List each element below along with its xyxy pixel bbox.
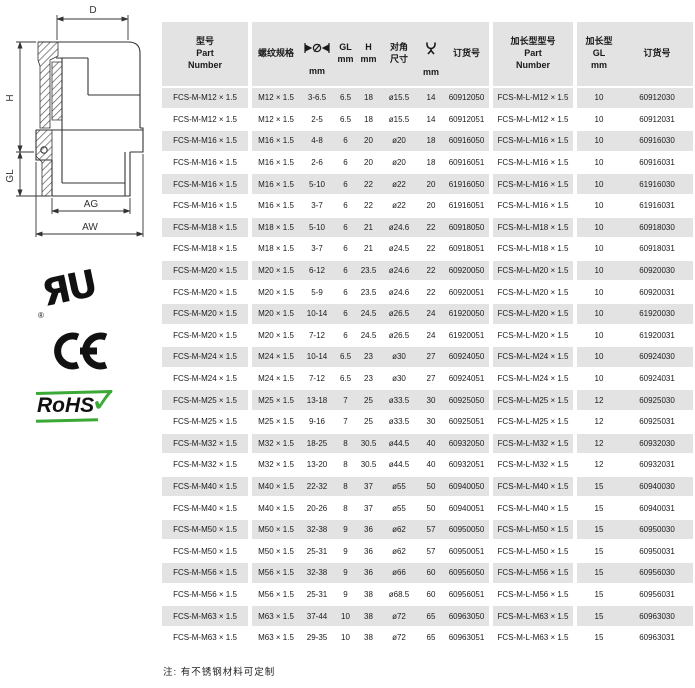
table-cell: 6 (334, 217, 357, 239)
table-row: FCS-M-M50 × 1.5M50 × 1.525-31936ø6257609… (162, 540, 693, 562)
table-cell: 4-8 (300, 130, 334, 152)
table-cell: FCS-M-L-M20 × 1.5 (491, 281, 575, 303)
table-cell: 13-18 (300, 389, 334, 411)
col-header-order-no: 订货号 (444, 22, 491, 87)
col-header-clamp-range: mm (300, 22, 334, 87)
table-cell: 14 (418, 87, 444, 109)
table-cell: 10 (575, 217, 621, 239)
table-row: FCS-M-M24 × 1.5M24 × 1.57-126.523ø302760… (162, 368, 693, 390)
table-cell: 61916030 (621, 173, 693, 195)
table-cell: 20 (418, 195, 444, 217)
table-cell: 14 (418, 109, 444, 131)
table-cell: 10 (334, 627, 357, 649)
table-cell: 60963030 (621, 605, 693, 627)
table-cell: FCS-M-L-M12 × 1.5 (491, 87, 575, 109)
table-cell: 60963051 (444, 627, 491, 649)
table-cell: 27 (418, 368, 444, 390)
table-cell: M18 × 1.5 (250, 217, 300, 239)
table-cell: 60918031 (621, 238, 693, 260)
table-cell: FCS-M-L-M25 × 1.5 (491, 411, 575, 433)
dim-label-gl: GL (5, 169, 16, 183)
table-cell: FCS-M-M20 × 1.5 (162, 281, 250, 303)
ce-logo-svg (50, 328, 112, 374)
table-cell: M56 × 1.5 (250, 584, 300, 606)
table-row: FCS-M-M32 × 1.5M32 × 1.513-20830.5ø44.54… (162, 454, 693, 476)
table-row: FCS-M-M25 × 1.5M25 × 1.59-16725ø33.53060… (162, 411, 693, 433)
table-cell: 15 (575, 476, 621, 498)
table-cell: 60920050 (444, 260, 491, 282)
table-cell: ø30 (380, 368, 418, 390)
table-cell: M20 × 1.5 (250, 303, 300, 325)
spec-table-section: 型号 Part Number 螺纹规格 mm (162, 22, 695, 649)
table-cell: 12 (575, 411, 621, 433)
table-cell: FCS-M-L-M24 × 1.5 (491, 368, 575, 390)
table-cell: FCS-M-L-M50 × 1.5 (491, 519, 575, 541)
table-cell: 36 (357, 519, 380, 541)
table-cell: 8 (334, 476, 357, 498)
table-row: FCS-M-M56 × 1.5M56 × 1.525-31938ø68.5606… (162, 584, 693, 606)
table-row: FCS-M-M32 × 1.5M32 × 1.518-25830.5ø44.54… (162, 433, 693, 455)
table-cell: M16 × 1.5 (250, 173, 300, 195)
table-cell: 22 (357, 173, 380, 195)
table-cell: 9 (334, 540, 357, 562)
table-cell: 60920051 (444, 281, 491, 303)
table-cell: 10 (575, 87, 621, 109)
table-cell: 5-9 (300, 281, 334, 303)
table-cell: 24.5 (357, 325, 380, 347)
table-cell: FCS-M-L-M16 × 1.5 (491, 173, 575, 195)
table-cell: 22 (418, 260, 444, 282)
table-cell: FCS-M-M12 × 1.5 (162, 87, 250, 109)
table-cell: 60912031 (621, 109, 693, 131)
table-row: FCS-M-M16 × 1.5M16 × 1.55-10622ø22206191… (162, 173, 693, 195)
table-cell: M50 × 1.5 (250, 519, 300, 541)
spec-table: 型号 Part Number 螺纹规格 mm (162, 22, 693, 649)
table-cell: M40 × 1.5 (250, 476, 300, 498)
table-cell: 27 (418, 346, 444, 368)
table-cell: FCS-M-M25 × 1.5 (162, 411, 250, 433)
table-cell: FCS-M-L-M32 × 1.5 (491, 454, 575, 476)
table-cell: 22 (418, 238, 444, 260)
table-cell: FCS-M-L-M20 × 1.5 (491, 303, 575, 325)
table-cell: M24 × 1.5 (250, 346, 300, 368)
table-cell: FCS-M-L-M20 × 1.5 (491, 260, 575, 282)
table-cell: FCS-M-M20 × 1.5 (162, 325, 250, 347)
table-row: FCS-M-M24 × 1.5M24 × 1.510-146.523ø30276… (162, 346, 693, 368)
table-cell: 29-35 (300, 627, 334, 649)
table-cell: FCS-M-M16 × 1.5 (162, 130, 250, 152)
table-cell: 12 (575, 454, 621, 476)
table-cell: 10-14 (300, 303, 334, 325)
table-cell: 10 (575, 281, 621, 303)
spec-table-body: FCS-M-M12 × 1.5M12 × 1.53-6.56.518ø15.51… (162, 87, 693, 648)
col-header-thread-spec: 螺纹规格 (250, 22, 300, 87)
table-cell: 38 (357, 584, 380, 606)
table-cell: 32-38 (300, 519, 334, 541)
table-cell: 60920030 (621, 260, 693, 282)
table-cell: M20 × 1.5 (250, 260, 300, 282)
table-row: FCS-M-M12 × 1.5M12 × 1.52-56.518ø15.5146… (162, 109, 693, 131)
table-cell: FCS-M-M18 × 1.5 (162, 217, 250, 239)
table-cell: FCS-M-M40 × 1.5 (162, 497, 250, 519)
table-cell: 60932031 (621, 454, 693, 476)
table-cell: FCS-M-L-M63 × 1.5 (491, 605, 575, 627)
table-cell: ø26.5 (380, 325, 418, 347)
table-cell: M20 × 1.5 (250, 325, 300, 347)
table-cell: 15 (575, 540, 621, 562)
wrench-unit-label: mm (423, 67, 439, 77)
table-cell: 6 (334, 152, 357, 174)
table-cell: ø20 (380, 152, 418, 174)
table-cell: 50 (418, 497, 444, 519)
table-cell: 60950031 (621, 540, 693, 562)
table-cell: 30 (418, 389, 444, 411)
table-cell: 10 (575, 109, 621, 131)
table-cell: FCS-M-L-M40 × 1.5 (491, 497, 575, 519)
table-cell: FCS-M-M16 × 1.5 (162, 173, 250, 195)
table-cell: FCS-M-M32 × 1.5 (162, 433, 250, 455)
table-cell: ø55 (380, 497, 418, 519)
table-cell: 65 (418, 605, 444, 627)
table-cell: ø44.5 (380, 454, 418, 476)
table-cell: 60924051 (444, 368, 491, 390)
table-cell: FCS-M-M16 × 1.5 (162, 195, 250, 217)
table-cell: 38 (357, 605, 380, 627)
table-cell: 60963050 (444, 605, 491, 627)
table-cell: 36 (357, 540, 380, 562)
table-cell: 15 (575, 605, 621, 627)
table-cell: ø33.5 (380, 411, 418, 433)
table-cell: 65 (418, 627, 444, 649)
table-cell: FCS-M-L-M32 × 1.5 (491, 433, 575, 455)
table-cell: FCS-M-L-M20 × 1.5 (491, 325, 575, 347)
rohs-check-icon: ✓ (90, 384, 119, 418)
table-cell: 18-25 (300, 433, 334, 455)
table-cell: 60925051 (444, 411, 491, 433)
clamp-unit-label: mm (309, 66, 325, 76)
table-cell: 60 (418, 584, 444, 606)
table-cell: 60925050 (444, 389, 491, 411)
table-cell: 60932030 (621, 433, 693, 455)
table-row: FCS-M-M40 × 1.5M40 × 1.520-26837ø5550609… (162, 497, 693, 519)
table-cell: FCS-M-M12 × 1.5 (162, 109, 250, 131)
footnote: 注: 有不锈钢材料可定制 (163, 664, 275, 678)
table-cell: 60918050 (444, 217, 491, 239)
table-cell: FCS-M-M20 × 1.5 (162, 303, 250, 325)
clamp-range-icon (304, 42, 330, 54)
table-cell: FCS-M-M63 × 1.5 (162, 605, 250, 627)
table-cell: FCS-M-M24 × 1.5 (162, 346, 250, 368)
table-row: FCS-M-M20 × 1.5M20 × 1.510-14624.5ø26.52… (162, 303, 693, 325)
table-cell: 12 (575, 433, 621, 455)
table-cell: 2-5 (300, 109, 334, 131)
table-row: FCS-M-M16 × 1.5M16 × 1.52-6620ø201860916… (162, 152, 693, 174)
table-cell: ø24.6 (380, 260, 418, 282)
table-header-row: 型号 Part Number 螺纹规格 mm (162, 22, 693, 87)
table-cell: 24.5 (357, 303, 380, 325)
table-row: FCS-M-M18 × 1.5M18 × 1.55-10621ø24.62260… (162, 217, 693, 239)
table-cell: FCS-M-M40 × 1.5 (162, 476, 250, 498)
ce-logo (50, 328, 112, 374)
table-cell: 5-10 (300, 173, 334, 195)
table-row: FCS-M-M20 × 1.5M20 × 1.56-12623.5ø24.622… (162, 260, 693, 282)
table-cell: 38 (357, 627, 380, 649)
table-cell: ø62 (380, 519, 418, 541)
table-cell: 9 (334, 584, 357, 606)
table-cell: ø66 (380, 562, 418, 584)
table-cell: 6 (334, 238, 357, 260)
col-header-wrench: mm (418, 22, 444, 87)
table-cell: 6.5 (334, 346, 357, 368)
table-cell: 3-7 (300, 238, 334, 260)
table-cell: 61916051 (444, 195, 491, 217)
table-cell: M32 × 1.5 (250, 454, 300, 476)
table-cell: 24 (418, 325, 444, 347)
table-cell: FCS-M-M16 × 1.5 (162, 152, 250, 174)
table-cell: ø15.5 (380, 87, 418, 109)
table-cell: 60916031 (621, 152, 693, 174)
table-cell: FCS-M-L-M25 × 1.5 (491, 389, 575, 411)
table-cell: ø44.5 (380, 433, 418, 455)
table-cell: M32 × 1.5 (250, 433, 300, 455)
table-cell: 6.5 (334, 87, 357, 109)
table-cell: 60932051 (444, 454, 491, 476)
table-cell: 18 (357, 109, 380, 131)
table-cell: 22 (418, 217, 444, 239)
table-cell: 15 (575, 519, 621, 541)
table-row: FCS-M-M25 × 1.5M25 × 1.513-18725ø33.5306… (162, 389, 693, 411)
table-cell: M16 × 1.5 (250, 130, 300, 152)
table-cell: 9 (334, 562, 357, 584)
table-cell: 7 (334, 411, 357, 433)
table-cell: 61920031 (621, 325, 693, 347)
rohs-label: RoHS (37, 394, 94, 417)
table-cell: 10 (575, 238, 621, 260)
table-cell: 10 (575, 368, 621, 390)
table-cell: 25 (357, 411, 380, 433)
table-cell: 60912051 (444, 109, 491, 131)
table-cell: 61916031 (621, 195, 693, 217)
dim-label-d: D (89, 5, 96, 16)
table-row: FCS-M-M18 × 1.5M18 × 1.53-7621ø24.522609… (162, 238, 693, 260)
table-cell: 23 (357, 346, 380, 368)
col-header-h: H mm (357, 22, 380, 87)
table-cell: ø24.5 (380, 238, 418, 260)
table-cell: M50 × 1.5 (250, 540, 300, 562)
table-cell: FCS-M-L-M40 × 1.5 (491, 476, 575, 498)
table-cell: 60925030 (621, 389, 693, 411)
table-cell: 15 (575, 497, 621, 519)
cable-gland-drawing: D H GL AG AW (0, 0, 160, 245)
table-cell: 60918030 (621, 217, 693, 239)
table-cell: 37 (357, 497, 380, 519)
registered-trademark-symbol: ® (38, 311, 44, 320)
table-cell: 5-10 (300, 217, 334, 239)
table-cell: M40 × 1.5 (250, 497, 300, 519)
table-cell: 21 (357, 217, 380, 239)
table-cell: 60918051 (444, 238, 491, 260)
table-cell: 40 (418, 454, 444, 476)
table-cell: ø33.5 (380, 389, 418, 411)
table-cell: 61920050 (444, 303, 491, 325)
table-cell: 20 (418, 173, 444, 195)
table-cell: 57 (418, 540, 444, 562)
table-cell: 6 (334, 260, 357, 282)
table-cell: 8 (334, 454, 357, 476)
col-header-diagonal: 对角 尺寸 (380, 22, 418, 87)
table-cell: 18 (357, 87, 380, 109)
dim-label-aw: AW (82, 222, 98, 233)
table-cell: M24 × 1.5 (250, 368, 300, 390)
table-cell: 61916050 (444, 173, 491, 195)
dim-label-ag: AG (84, 199, 99, 210)
ul-logo-glyphs: ЯU (39, 265, 98, 312)
table-cell: FCS-M-L-M12 × 1.5 (491, 109, 575, 131)
table-cell: 9 (334, 519, 357, 541)
table-cell: ø62 (380, 540, 418, 562)
table-cell: FCS-M-L-M16 × 1.5 (491, 152, 575, 174)
table-row: FCS-M-M20 × 1.5M20 × 1.57-12624.5ø26.524… (162, 325, 693, 347)
col-header-ext-gl: 加长型 GL mm (575, 22, 621, 87)
table-cell: FCS-M-L-M63 × 1.5 (491, 627, 575, 649)
table-cell: M20 × 1.5 (250, 281, 300, 303)
table-row: FCS-M-M20 × 1.5M20 × 1.55-9623.5ø24.6226… (162, 281, 693, 303)
wrench-icon (424, 41, 438, 55)
table-cell: FCS-M-M24 × 1.5 (162, 368, 250, 390)
table-cell: 60956031 (621, 584, 693, 606)
table-cell: 8 (334, 433, 357, 455)
table-cell: M25 × 1.5 (250, 411, 300, 433)
table-cell: M12 × 1.5 (250, 87, 300, 109)
table-cell: FCS-M-M50 × 1.5 (162, 519, 250, 541)
table-cell: 10 (575, 195, 621, 217)
table-cell: 6 (334, 325, 357, 347)
table-cell: M56 × 1.5 (250, 562, 300, 584)
table-cell: 25-31 (300, 584, 334, 606)
table-cell: 60916050 (444, 130, 491, 152)
table-cell: 10 (334, 605, 357, 627)
table-cell: 18 (418, 130, 444, 152)
table-cell: 3-7 (300, 195, 334, 217)
table-cell: ø22 (380, 195, 418, 217)
table-cell: FCS-M-L-M18 × 1.5 (491, 238, 575, 260)
table-cell: 60950030 (621, 519, 693, 541)
col-header-ext-part-number: 加长型型号 Part Number (491, 22, 575, 87)
table-row: FCS-M-M16 × 1.5M16 × 1.53-7622ø222061916… (162, 195, 693, 217)
table-cell: 60912030 (621, 87, 693, 109)
table-cell: 32-38 (300, 562, 334, 584)
col-header-ext-order-no: 订货号 (621, 22, 693, 87)
ul-recognized-logo: ЯU ® (42, 270, 120, 322)
table-cell: 18 (418, 152, 444, 174)
table-cell: FCS-M-M56 × 1.5 (162, 584, 250, 606)
table-cell: 6.5 (334, 109, 357, 131)
table-cell: 60956051 (444, 584, 491, 606)
table-cell: M12 × 1.5 (250, 109, 300, 131)
table-cell: 6-12 (300, 260, 334, 282)
table-cell: 7-12 (300, 368, 334, 390)
table-cell: 60963031 (621, 627, 693, 649)
col-header-gl: GL mm (334, 22, 357, 87)
table-cell: 22 (418, 281, 444, 303)
table-cell: FCS-M-L-M56 × 1.5 (491, 584, 575, 606)
table-cell: 15 (575, 584, 621, 606)
table-cell: 6 (334, 130, 357, 152)
table-cell: 60912050 (444, 87, 491, 109)
table-cell: 40 (418, 433, 444, 455)
table-cell: FCS-M-L-M24 × 1.5 (491, 346, 575, 368)
table-cell: 2-6 (300, 152, 334, 174)
table-cell: 60932050 (444, 433, 491, 455)
table-cell: 60940031 (621, 497, 693, 519)
table-cell: 60916030 (621, 130, 693, 152)
table-cell: 30.5 (357, 454, 380, 476)
table-cell: 36 (357, 562, 380, 584)
table-cell: FCS-M-M63 × 1.5 (162, 627, 250, 649)
table-cell: 3-6.5 (300, 87, 334, 109)
rohs-underline (36, 418, 98, 423)
cable-gland-drawing-svg: D H GL AG AW (0, 0, 160, 245)
table-cell: 23.5 (357, 260, 380, 282)
table-cell: ø24.6 (380, 281, 418, 303)
table-cell: 8 (334, 497, 357, 519)
table-cell: 10 (575, 152, 621, 174)
table-cell: ø20 (380, 130, 418, 152)
table-cell: 6 (334, 303, 357, 325)
table-cell: 22 (357, 195, 380, 217)
table-cell: ø55 (380, 476, 418, 498)
table-row: FCS-M-M40 × 1.5M40 × 1.522-32837ø5550609… (162, 476, 693, 498)
table-cell: ø30 (380, 346, 418, 368)
table-cell: ø15.5 (380, 109, 418, 131)
table-cell: 60956050 (444, 562, 491, 584)
table-cell: FCS-M-L-M18 × 1.5 (491, 217, 575, 239)
table-cell: 60924050 (444, 346, 491, 368)
table-cell: 6 (334, 173, 357, 195)
table-cell: 15 (575, 562, 621, 584)
table-cell: 50 (418, 476, 444, 498)
table-cell: 30.5 (357, 433, 380, 455)
table-row: FCS-M-M12 × 1.5M12 × 1.53-6.56.518ø15.51… (162, 87, 693, 109)
col-header-part-number: 型号 Part Number (162, 22, 250, 87)
table-cell: M16 × 1.5 (250, 195, 300, 217)
table-cell: 10 (575, 325, 621, 347)
table-cell: FCS-M-M20 × 1.5 (162, 260, 250, 282)
table-cell: M25 × 1.5 (250, 389, 300, 411)
table-cell: 10 (575, 130, 621, 152)
table-row: FCS-M-M63 × 1.5M63 × 1.537-441038ø726560… (162, 605, 693, 627)
table-cell: ø24.6 (380, 217, 418, 239)
table-cell: 25 (357, 389, 380, 411)
table-cell: 6.5 (334, 368, 357, 390)
table-cell: 60924031 (621, 368, 693, 390)
table-cell: 60950051 (444, 540, 491, 562)
table-cell: 60 (418, 562, 444, 584)
table-cell: 30 (418, 411, 444, 433)
table-cell: M18 × 1.5 (250, 238, 300, 260)
table-cell: 22-32 (300, 476, 334, 498)
table-row: FCS-M-M50 × 1.5M50 × 1.532-38936ø6257609… (162, 519, 693, 541)
table-cell: 23.5 (357, 281, 380, 303)
table-cell: 9-16 (300, 411, 334, 433)
table-cell: 60940050 (444, 476, 491, 498)
table-cell: 61920051 (444, 325, 491, 347)
rohs-logo: RoHS ✓ (36, 390, 122, 426)
table-cell: 7 (334, 389, 357, 411)
table-cell: FCS-M-M18 × 1.5 (162, 238, 250, 260)
table-cell: FCS-M-L-M56 × 1.5 (491, 562, 575, 584)
table-cell: 60924030 (621, 346, 693, 368)
